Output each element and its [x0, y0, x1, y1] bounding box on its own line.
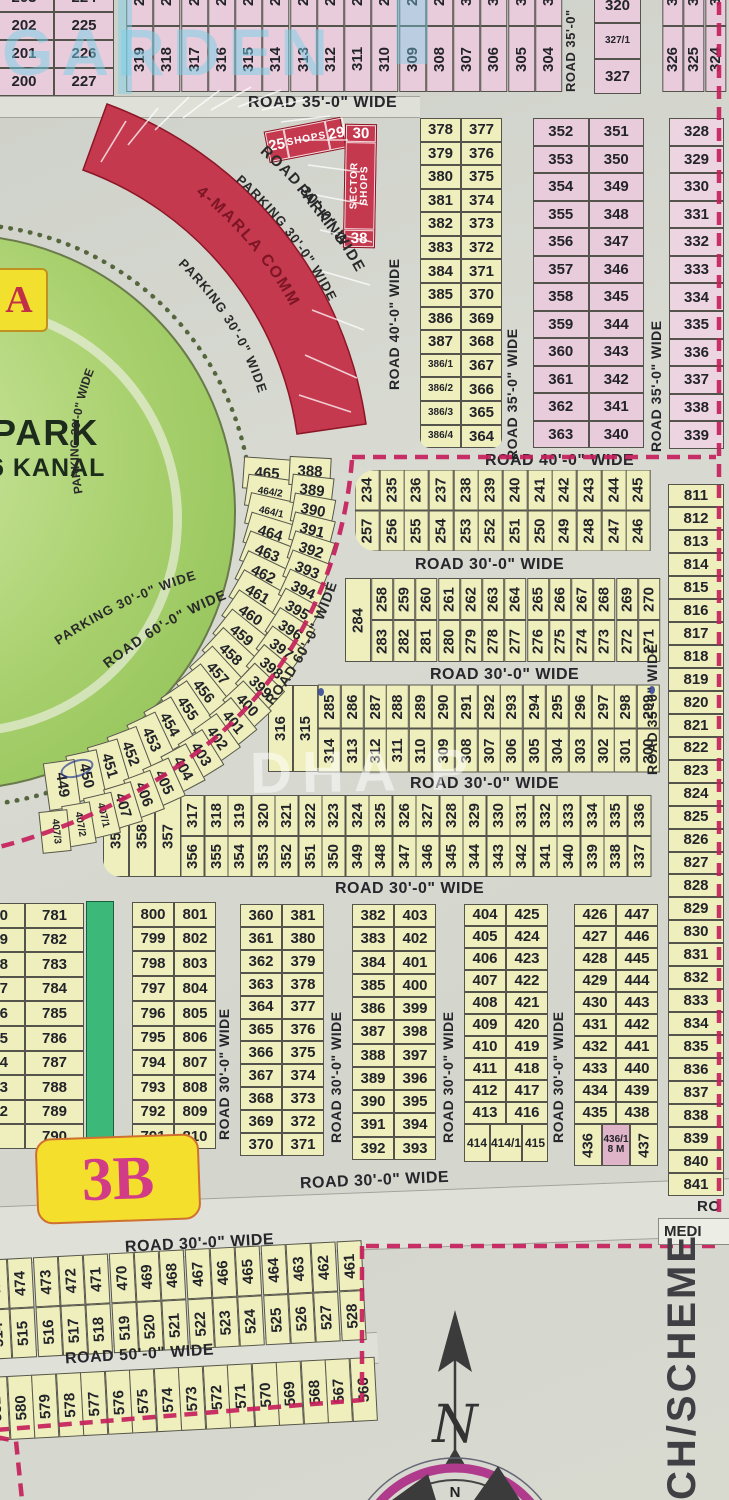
plot-cell: 780 [0, 903, 25, 928]
plot-pair: 383402 [352, 927, 436, 950]
plot-cell: 383 [420, 236, 461, 260]
plot-cell: 386/2 [420, 377, 461, 401]
plot-cell: 461 [336, 1240, 364, 1291]
plot-pair: 296303 [569, 685, 592, 772]
plot-pair: 406423 [464, 948, 548, 970]
plot-cell: 242 [552, 470, 577, 511]
road-35-vertical-1: ROAD 35'-0" WIDE [504, 245, 520, 460]
plot-pair: 391394 [352, 1113, 436, 1136]
plot-cell: 373 [282, 1087, 324, 1110]
plot-cell: 468 [159, 1249, 187, 1300]
plot-cell: 386/3 [420, 401, 461, 425]
plot-cell: 782 [25, 928, 84, 953]
plot-pair: 383372 [420, 236, 502, 260]
plot-cell: 407/3 [39, 809, 72, 854]
plot-cell: 813 [668, 530, 724, 553]
plot-pair: 385400 [352, 974, 436, 997]
plot-cell: 296 [569, 685, 592, 729]
plot-cell: 408 [464, 992, 506, 1014]
plot-cell: 372 [282, 1110, 324, 1133]
plot-pair: 298301 [614, 685, 637, 772]
plot-cell: 352 [533, 118, 589, 146]
plot-cell: 392 [286, 530, 335, 570]
plot-cell: 303 [569, 729, 592, 773]
plot-pair: 367374 [240, 1064, 324, 1087]
plot-cell: 379 [282, 950, 324, 973]
plot-cell: 441 [616, 1036, 658, 1058]
plot-cell: 526 [288, 1293, 316, 1344]
plot-cell: 395 [272, 587, 323, 633]
plot-cell: 838 [668, 1104, 724, 1127]
plot-cell: 389 [352, 1067, 394, 1090]
plot-pair: 260281 [415, 578, 437, 662]
block-772-790: 7807817797827787837777847767857757867747… [0, 903, 84, 1149]
plot-cell: 423 [506, 948, 548, 970]
plot-cell: 301 [614, 729, 637, 773]
plot-cell: 567 [325, 1358, 353, 1423]
plot-pair: 433440 [574, 1058, 658, 1080]
plot-pair: 776785 [0, 1001, 84, 1026]
plot-cell: 360 [240, 904, 282, 927]
plot-cell: 385 [352, 974, 394, 997]
plot-cell: 405 [464, 926, 506, 948]
plot-cell: 407/2 [61, 801, 97, 847]
plot-pair: 267274 [571, 578, 593, 662]
plot-cell: 294 [523, 685, 546, 729]
plot-cell: 437 [630, 1124, 658, 1166]
plot-cell: 403 [394, 904, 436, 927]
comm-plot-23: 23 [142, 127, 179, 164]
plot-cell: 442 [616, 1014, 658, 1036]
road-30-label-4: ROAD 30'-0" WIDE [335, 880, 484, 898]
plot-pair: 779782 [0, 928, 84, 953]
plot-cell: 569 [276, 1361, 304, 1426]
plot-cell: 349 [589, 173, 645, 201]
plot-pair: 359344 [533, 311, 644, 339]
plot-pair: 296311 [344, 0, 371, 92]
plot-cell: 341 [534, 836, 558, 877]
plot-cell: 416 [506, 1102, 548, 1124]
plot-cell: 809 [174, 1100, 216, 1125]
compass-script-n: N [430, 1395, 479, 1455]
plot-cell: 282 [393, 620, 415, 662]
plot-pair: 292307 [478, 685, 501, 772]
plot-cell: 829 [668, 897, 724, 920]
plot-pair: 362379 [240, 950, 324, 973]
plot-cell: 436 [574, 1124, 602, 1166]
plot-cell: 574 [154, 1367, 182, 1432]
plot-cell: 310 [371, 26, 398, 92]
plot-pair: 331342 [510, 795, 534, 877]
plot-cell: 469 [133, 1251, 161, 1302]
plot-cell: 339 [581, 836, 605, 877]
plot-cell: 407 [464, 970, 506, 992]
pen-dot [649, 686, 655, 694]
road-35-vertical-3: ROAD 35'-0" WIDE [644, 560, 660, 775]
plot-pair: 323324 [705, 0, 726, 92]
plot-cell: 819 [668, 668, 724, 691]
plot-cell: 516 [35, 1306, 63, 1357]
plot-cell: 354 [533, 173, 589, 201]
plot-cell: 297 [371, 0, 398, 26]
plot-cell: 427 [574, 926, 616, 948]
plot-cell: 568 [301, 1359, 329, 1424]
plot-cell: 443 [616, 992, 658, 1014]
plot-pair: 294305 [523, 685, 546, 772]
plot-pair: 404425 [464, 904, 548, 926]
plot-cell: 774 [0, 1051, 25, 1076]
plot-cell: 788 [25, 1075, 84, 1100]
plot-cell: 401 [394, 951, 436, 974]
plot-cell: 224 [54, 0, 114, 12]
plot-pair: 386/3365 [420, 401, 502, 425]
plot-cell: 822 [668, 737, 724, 760]
plot-pair: 431442 [574, 1014, 658, 1036]
plot-cell: 820 [668, 691, 724, 714]
plot-pair: 380375 [420, 165, 502, 189]
plot-pair: 322325 [683, 0, 704, 92]
plot-cell: 400 [222, 680, 272, 731]
plot-cell: 434 [574, 1080, 616, 1102]
plot-cell: 525 [262, 1294, 290, 1345]
plot-cell: 815 [668, 576, 724, 599]
plot-cell: 421 [506, 992, 548, 1014]
plot-pair: 354349 [533, 173, 644, 201]
plot-cell: 334 [581, 795, 605, 836]
plot-cell: 356 [181, 836, 205, 877]
plot-cell [0, 1124, 25, 1149]
plot-cell: 433 [574, 1058, 616, 1080]
plot-cell: 803 [174, 951, 216, 976]
plot-cell: 778 [0, 952, 25, 977]
plot-cell: 287 [364, 685, 387, 729]
plot-cell: 386/1 [420, 354, 461, 378]
plot-cell: 292 [478, 685, 501, 729]
plot-cell: 357 [155, 795, 181, 877]
plot-pair: 412417 [464, 1080, 548, 1102]
plot-cell: 406 [464, 948, 506, 970]
plot-pair: 774787 [0, 1051, 84, 1076]
plot-pair: 358345 [533, 283, 644, 311]
plot-cell: 291 [455, 685, 478, 729]
sector-a-letter: A [5, 278, 32, 322]
pen-dot [318, 688, 324, 696]
plot-pair: 434439 [574, 1080, 658, 1102]
plot-cell: 428 [574, 948, 616, 970]
plot-pair: 325348 [369, 795, 393, 877]
plot-pair: 384371 [420, 259, 502, 283]
plot-pair: 426447 [574, 904, 658, 926]
plot-cell: 571 [227, 1363, 255, 1428]
plot-cell: 296 [344, 0, 371, 26]
plot-cell: 298 [614, 685, 637, 729]
plot-cell: 260 [415, 578, 437, 620]
plot-pair: 461528 [336, 1240, 367, 1341]
plot-pair: 322351 [299, 795, 323, 877]
plot-cell: 578 [56, 1372, 84, 1437]
plot-pair: 333340 [557, 795, 581, 877]
plot-cell: 277 [504, 620, 526, 662]
plot-cell: 811 [668, 484, 724, 507]
block-461-528: 4755144745154735164725174715184705194695… [0, 1240, 366, 1360]
plot-cell: 320 [594, 0, 641, 23]
plot-cell: 773 [0, 1075, 25, 1100]
plot-cell: 575 [129, 1368, 157, 1433]
plot-pair: 370371 [240, 1133, 324, 1156]
plot-pair: 792809 [132, 1100, 216, 1125]
plot-cell: 259 [393, 578, 415, 620]
road-35-top-label: ROAD 35'-0" WIDE [248, 94, 397, 112]
plot-cell: 361 [240, 927, 282, 950]
plot-pair: 265276 [527, 578, 549, 662]
plot-cell: 319 [228, 795, 252, 836]
plot-pair: 386/1367 [420, 354, 502, 378]
plot-cell: 262 [460, 578, 482, 620]
plot-cell: 332 [669, 228, 724, 256]
plot-cell: 284 [345, 578, 371, 662]
plot-cell: 340 [589, 421, 645, 449]
plot-cell: 272 [616, 620, 638, 662]
highlighter-text: GARDEN [2, 14, 336, 90]
plot-cell: 836 [668, 1058, 724, 1081]
plot-cell: 328 [669, 118, 724, 146]
plot-cell: 777 [0, 977, 25, 1002]
sector-shops-strip: 30SECTOR SHOPS38 [343, 124, 377, 249]
plot-pair: 328345 [440, 795, 464, 877]
plot-pair: 409420 [464, 1014, 548, 1036]
block-382-403: 3824033834023844013854003863993873983883… [352, 904, 436, 1160]
plot-cell: 244 [602, 470, 627, 511]
plot-cell: 787 [25, 1051, 84, 1076]
plot-cell: 515 [10, 1307, 38, 1358]
block-321-326: 321326322325323324 [662, 0, 726, 92]
road-40-label: ROAD 40'-0" WIDE [485, 452, 634, 470]
plot-pair: 320353 [252, 795, 276, 877]
block-360-381: 3603813613803623793633783643773653763663… [240, 904, 324, 1156]
compass-arrow-icon [438, 1310, 472, 1372]
plot-cell: 363 [533, 421, 589, 449]
plot-cell: 362 [240, 950, 282, 973]
plot-cell: 390 [289, 492, 336, 528]
block-436-437: 436436/1 8 M437 [574, 1124, 658, 1166]
plot-cell: 388 [288, 456, 331, 487]
plot-cell: 386/4 [420, 425, 461, 448]
plot-cell: 379 [420, 142, 461, 166]
plot-cell: 342 [589, 366, 645, 394]
plot-cell: 424 [506, 926, 548, 948]
plot-cell: 30 [346, 125, 376, 143]
plot-cell: 332 [534, 795, 558, 836]
plot-pair: 237254 [429, 470, 454, 551]
plot-cell: 266 [549, 578, 571, 620]
plot-cell: 814 [668, 553, 724, 576]
road-30-vertical-c: ROAD 30'-0" WIDE [440, 958, 456, 1143]
plot-cell: 278 [482, 620, 504, 662]
scheme-edge-label: CH/SCHEME [660, 1258, 705, 1500]
plot-pair: 382373 [420, 212, 502, 236]
plot-cell: 465 [235, 1245, 263, 1296]
plot-cell: 283 [371, 620, 393, 662]
plot-cell: 381 [420, 189, 461, 213]
plot-cell: 387 [352, 1020, 394, 1043]
plot-cell: 839 [668, 1127, 724, 1150]
comm-plot-1: 1 [94, 146, 130, 182]
plot-cell: 356 [533, 228, 589, 256]
plot-cell: 473 [32, 1256, 60, 1307]
plot-cell: 327/1 [594, 23, 641, 58]
plot-pair: 261280 [438, 578, 460, 662]
plot-cell: 420 [506, 1014, 548, 1036]
plot-cell: 404 [160, 744, 205, 795]
plot-cell: 393 [282, 549, 332, 591]
plot-pair: 239252 [478, 470, 503, 551]
watermark: DHA P [249, 736, 478, 807]
plot-cell: 373 [461, 212, 502, 236]
plot-cell: 577 [80, 1371, 108, 1436]
plot-cell: 331 [669, 201, 724, 229]
plot-cell: 243 [577, 470, 602, 511]
plot-pair: 390395 [352, 1090, 436, 1113]
plot-cell: 579 [32, 1373, 60, 1438]
plot-cell: 363 [240, 973, 282, 996]
plot-pair: 388397 [352, 1044, 436, 1067]
plot-cell: 824 [668, 783, 724, 806]
plot-pair: 259282 [393, 578, 415, 662]
plot-pair: 429444 [574, 970, 658, 992]
plot-pair: 361342 [533, 366, 644, 394]
plot-cell: 470 [108, 1252, 136, 1303]
plot-cell: 366 [461, 377, 502, 401]
plot-pair: 382403 [352, 904, 436, 927]
plot-cell: 391 [288, 511, 336, 549]
plot-cell: 419 [506, 1036, 548, 1058]
plot-pair: 324349 [346, 795, 370, 877]
plot-cell: 368 [240, 1087, 282, 1110]
plot-cell: 392 [352, 1137, 394, 1160]
plot-cell: 269 [616, 578, 638, 620]
plot-cell: 384 [352, 951, 394, 974]
plot-cell: 576 [105, 1370, 133, 1435]
plot-cell: 396 [394, 1067, 436, 1090]
plot-cell: 359 [103, 795, 129, 877]
plot-pair: 317356 [181, 795, 205, 877]
plot-pair: 432441 [574, 1036, 658, 1058]
plot-pair: 794807 [132, 1050, 216, 1075]
plot-cell: 792 [132, 1100, 174, 1125]
plot-cell: 816 [668, 599, 724, 622]
plot-pair: 321352 [275, 795, 299, 877]
plot-cell: 409 [464, 1014, 506, 1036]
comm-plot-2: 2 [123, 160, 160, 197]
plot-cell: 350 [322, 836, 346, 877]
plot-cell: 784 [25, 977, 84, 1002]
plot-cell: 376 [282, 1019, 324, 1042]
plot-cell: 335 [669, 311, 724, 339]
plot-cell: 297 [592, 685, 615, 729]
road-40-vertical-label: ROAD 40'-0" WIDE [386, 222, 402, 390]
plot-cell: 317 [181, 795, 205, 836]
plot-cell: 295 [546, 685, 569, 729]
parking-diagonal-label: PARKING [293, 181, 350, 248]
sector-a-badge: A [0, 268, 48, 332]
block-317-356: 3173563183553193543203533213523223513233… [181, 795, 651, 877]
plot-cell: 775 [0, 1026, 25, 1051]
plot-pair: 352351 [533, 118, 644, 146]
plot-cell: 366 [240, 1041, 282, 1064]
plot-cell: 281 [415, 620, 437, 662]
plot-pair: 800801 [132, 902, 216, 927]
plot-cell: 302 [508, 0, 535, 26]
plot-pair: 797804 [132, 976, 216, 1001]
plot-cell: 321 [662, 0, 683, 26]
plot-pair: 793808 [132, 1075, 216, 1100]
plot-pair: 243248 [577, 470, 602, 551]
park-name: PARK [0, 412, 99, 454]
plot-pair: 263278 [482, 578, 504, 662]
plot-cell: 375 [461, 165, 502, 189]
plot-cell: 572 [203, 1364, 231, 1429]
sector-3b-label: 3B [81, 1142, 156, 1215]
plot-cell: 337 [669, 366, 724, 394]
plot-cell: 400 [394, 974, 436, 997]
plot-cell: 329 [669, 146, 724, 174]
plot-cell: 248 [577, 511, 602, 552]
plot-cell: 365 [240, 1019, 282, 1042]
road-30-vertical-b: ROAD 30'-0" WIDE [328, 958, 344, 1143]
plot-cell: 380 [420, 165, 461, 189]
plot-cell: 252 [478, 511, 503, 552]
plot-cell: 403 [177, 729, 224, 780]
plot-cell: 806 [174, 1026, 216, 1051]
plot-cell: 794 [132, 1050, 174, 1075]
plot-pair: 427446 [574, 926, 658, 948]
plot-cell: 336 [628, 795, 652, 836]
plot-pair: 386/2366 [420, 377, 502, 401]
plot-cell: 240 [503, 470, 528, 511]
plot-cell: 236 [404, 470, 429, 511]
plot-pair: 360381 [240, 904, 324, 927]
plot-cell: 783 [25, 952, 84, 977]
plot-cell: 349 [346, 836, 370, 877]
plot-cell: 336 [669, 339, 724, 367]
plot-cell: 413 [464, 1102, 506, 1124]
plot-cell: 301 [480, 0, 507, 26]
highlighter-stroke [396, 0, 428, 64]
plot-pair: 366375 [240, 1041, 324, 1064]
plot-cell: 447 [616, 904, 658, 926]
plot-cell: 293 [500, 685, 523, 729]
plot-pair: 262279 [460, 578, 482, 662]
plot-pair: 798803 [132, 951, 216, 976]
plot-pair: 362341 [533, 393, 644, 421]
plot-cell: 840 [668, 1150, 724, 1173]
plot-cell: 327 [594, 59, 641, 94]
plot-pair: 335338 [604, 795, 628, 877]
road-right-label: RO [697, 1198, 721, 1215]
plot-cell: 432 [574, 1036, 616, 1058]
plot-cell: 286 [341, 685, 364, 729]
plot-cell: 371 [461, 259, 502, 283]
plot-cell: 381 [282, 904, 324, 927]
plot-cell: 279 [460, 620, 482, 662]
plot-cell: 367 [240, 1064, 282, 1087]
plot-cell: 331 [510, 795, 534, 836]
road-30-label-2: ROAD 30'-0" WIDE [430, 666, 579, 684]
plot-cell: 344 [589, 311, 645, 339]
plot-cell: 377 [282, 996, 324, 1019]
plot-cell: 351 [299, 836, 323, 877]
plot-cell: 337 [628, 836, 652, 877]
